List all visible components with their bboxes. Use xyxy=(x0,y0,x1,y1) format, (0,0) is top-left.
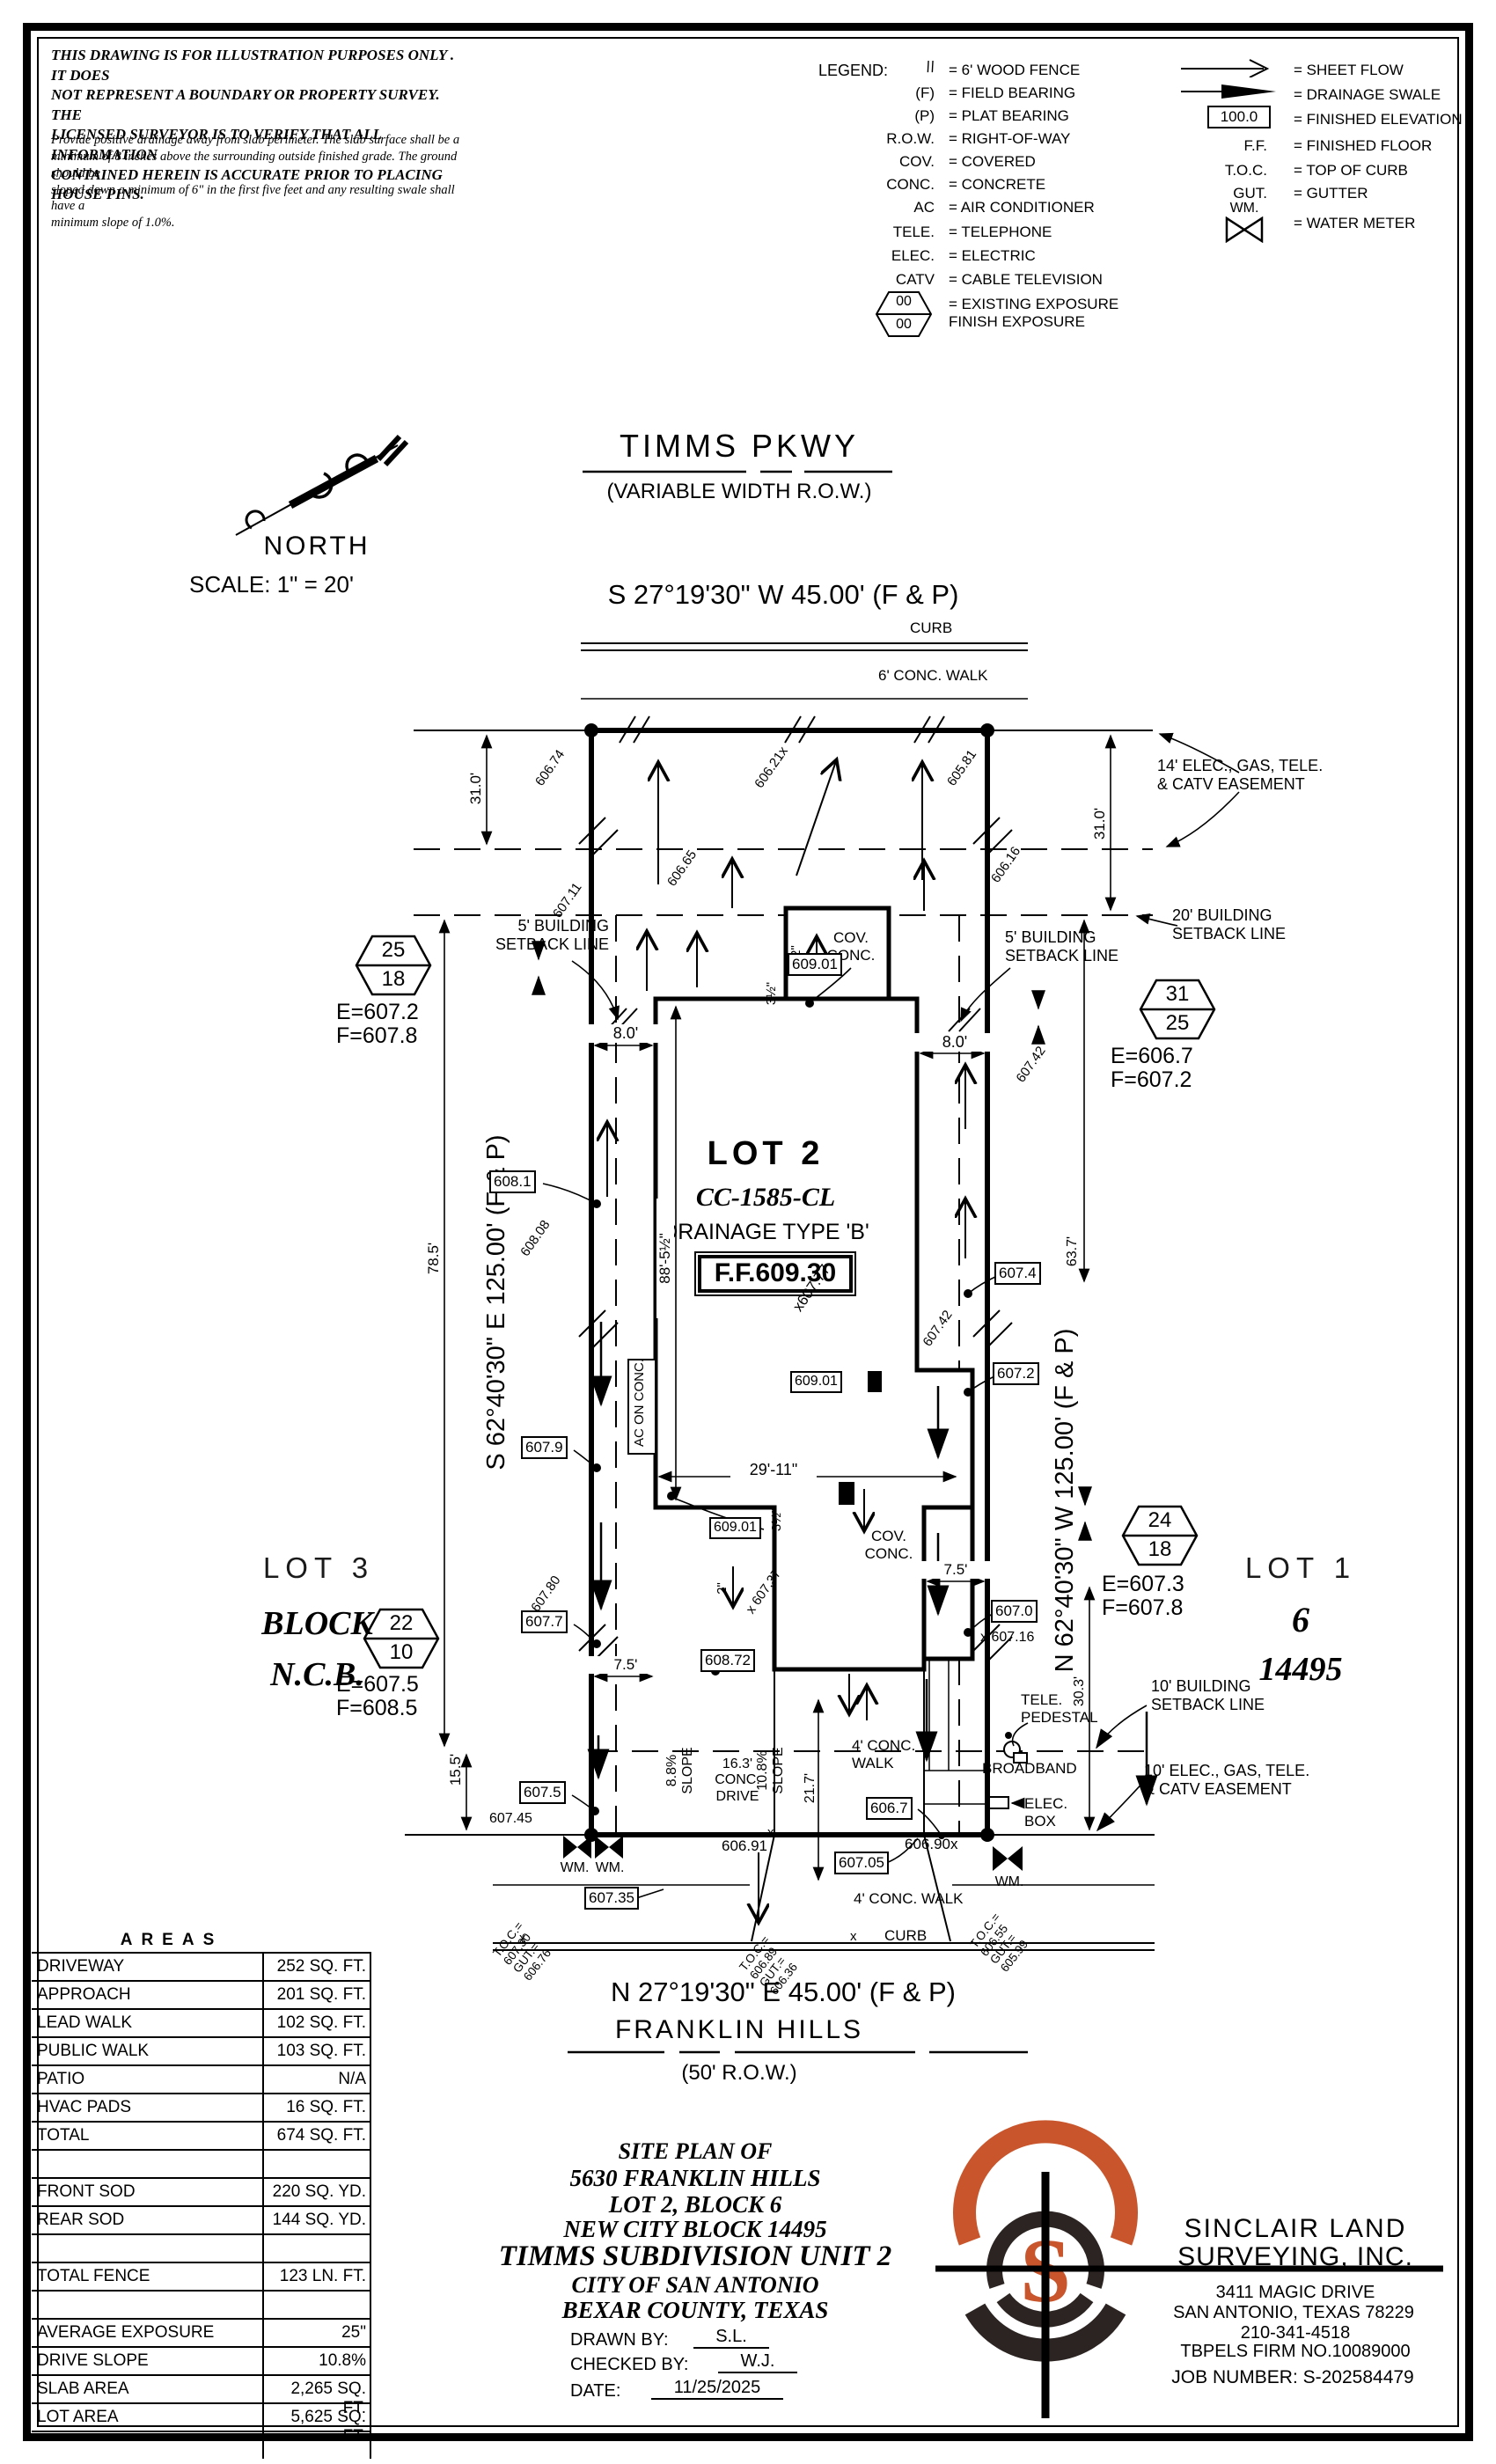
plat-bearing-symbol: (P) xyxy=(836,107,935,125)
x-mark-curb-right: x xyxy=(850,1929,857,1944)
firm-name-line-1: SINCLAIR LAND xyxy=(1144,2214,1447,2245)
dim-78-5: 78.5' xyxy=(425,1230,443,1287)
spot-box-607-9: 607.9 xyxy=(521,1436,568,1459)
dim-15-5: 15.5' xyxy=(447,1742,465,1797)
row-label: SLAB AREA xyxy=(37,2380,129,2399)
job-number: JOB NUMBER: S-202584479 xyxy=(1132,2367,1454,2388)
legend-hex-existing: 00 xyxy=(880,294,928,310)
ac-symbol: AC xyxy=(836,199,935,216)
setback-5ft-left-label: 5' BUILDING SETBACK LINE xyxy=(475,917,609,953)
setback-10ft-label: 10' BUILDING SETBACK LINE xyxy=(1151,1677,1301,1713)
sheet-flow-icon xyxy=(1179,58,1281,77)
ac-pad-label: AC ON CONC. xyxy=(632,1353,647,1452)
flag-nw-finish: F=607.8 xyxy=(336,1023,417,1049)
row-value: N/A xyxy=(268,2070,370,2089)
north-label: NORTH xyxy=(253,532,380,562)
table-row: REAR SOD144 SQ. YD. xyxy=(32,2207,370,2235)
spot-box-607-4: 607.4 xyxy=(994,1262,1041,1285)
date-value: 11/25/2025 xyxy=(651,2378,783,2400)
legend-covered: = COVERED xyxy=(949,153,1036,171)
legend-finished-floor: = FINISHED FLOOR xyxy=(1294,137,1432,155)
row-label: TOTAL xyxy=(37,2126,89,2145)
dim-8-right: 8.0' xyxy=(913,1033,996,1052)
dim-30-3: 30.3' xyxy=(1072,1665,1088,1718)
spot-606-90: 606.90x xyxy=(905,1836,958,1853)
row-value: 16 SQ. FT. xyxy=(268,2098,370,2117)
street-name-bottom: FRANKLIN HILLS xyxy=(581,2015,898,2046)
row-value: 201 SQ. FT. xyxy=(268,1985,370,2005)
legend-catv: = CABLE TELEVISION xyxy=(949,271,1103,289)
row-value: 102 SQ. FT. xyxy=(268,2013,370,2033)
firm-tbpels: TBPELS FIRM NO.10089000 xyxy=(1140,2342,1450,2362)
field-bearing-symbol: (F) xyxy=(836,84,935,102)
title-subdivision: TIMMS SUBDIVISION UNIT 2 xyxy=(431,2240,959,2274)
flag-ne-finish: F=607.2 xyxy=(1111,1067,1192,1093)
row-symbol: R.O.W. xyxy=(836,130,935,148)
areas-table-title: AREAS xyxy=(62,1931,282,1950)
table-row: FRONT SOD220 SQ. YD. xyxy=(32,2179,370,2207)
dim-7-5-right: 7.5' xyxy=(919,1561,993,1579)
dim-8-left: 8.0' xyxy=(586,1024,665,1043)
legend-gutter: = GUTTER xyxy=(1294,185,1368,202)
dim-2in-porch: 2" xyxy=(843,1475,858,1508)
flag-se-existing: E=607.3 xyxy=(1102,1572,1184,1597)
row-label: TOTAL FENCE xyxy=(37,2267,150,2286)
spot-607-45: 607.45 xyxy=(489,1811,532,1827)
site-plan-sheet: S THIS DRAWING IS FOR ILLUSTRATION PURPO… xyxy=(0,0,1496,2464)
title-county: BEXAR COUNTY, TEXAS xyxy=(449,2297,942,2324)
street-name-top: TIMMS PKWY xyxy=(581,428,898,464)
table-row: PATION/A xyxy=(32,2066,370,2094)
covered-concrete-porch-label: COV. CONC. xyxy=(856,1528,921,1562)
spot-box-607-05: 607.05 xyxy=(834,1852,889,1874)
row-value: 144 SQ. YD. xyxy=(268,2211,370,2230)
firm-address-street: 3411 MAGIC DRIVE xyxy=(1144,2283,1447,2303)
row-value: 674 SQ. FT. xyxy=(268,2126,370,2145)
ff-symbol: F.F. xyxy=(1179,137,1267,155)
finished-elevation-symbol: 100.0 xyxy=(1207,106,1271,128)
flag-sw-existing: E=607.5 xyxy=(336,1672,419,1698)
broadband-label: BROADBAND xyxy=(982,1760,1096,1778)
table-row: TOTAL FENCE123 LN. FT. xyxy=(32,2263,370,2292)
legend-top-of-curb: = TOP OF CURB xyxy=(1294,162,1408,180)
checked-by-label: CHECKED BY: xyxy=(570,2355,688,2375)
row-value: 10.8% xyxy=(268,2351,370,2371)
drive-slope-left-label: 8.8% SLOPE xyxy=(664,1744,697,1797)
flag-sw-finish: F=608.5 xyxy=(336,1696,417,1721)
dim-21-7: 21.7' xyxy=(803,1762,818,1815)
row-label: DRIVE SLOPE xyxy=(37,2351,149,2371)
cov-symbol: COV. xyxy=(836,153,935,171)
dim-88-5half: 88'-5½" xyxy=(656,1199,674,1318)
row-label: LEAD WALK xyxy=(37,2013,132,2033)
wood-fence-symbol: \\ xyxy=(877,58,938,77)
row-label: LOT AREA xyxy=(37,2408,119,2427)
lot2-cc-number: CC-1585-CL xyxy=(667,1183,864,1214)
legend-sheet-flow: = SHEET FLOW xyxy=(1294,62,1404,79)
checked-by-value: W.J. xyxy=(718,2351,797,2373)
walk-4ft-upper-label: 4' CONC. WALK xyxy=(852,1737,933,1771)
title-lot-block: LOT 2, BLOCK 6 xyxy=(449,2191,942,2218)
areas-table: DRIVEWAY252 SQ. FT. APPROACH201 SQ. FT. … xyxy=(32,1952,371,2459)
legend-field-bearing: = FIELD BEARING xyxy=(949,84,1075,102)
spot-box-609-01-step: 609.01 xyxy=(790,1371,842,1393)
legend-hex-finish: 00 xyxy=(880,317,928,333)
flag-se-finish: F=607.8 xyxy=(1102,1595,1183,1621)
flag-ne-existing: E=606.7 xyxy=(1111,1044,1193,1069)
spot-box-607-0: 607.0 xyxy=(991,1600,1038,1623)
title-ncb: NEW CITY BLOCK 14495 xyxy=(449,2216,942,2243)
spot-607-16: x 607.16 xyxy=(980,1630,1034,1646)
setback-20ft-label: 20' BUILDING SETBACK LINE xyxy=(1172,906,1313,942)
conc-symbol: CONC. xyxy=(836,176,935,194)
wm-symbol-label: WM. xyxy=(1221,201,1267,216)
drive-slope-right-label: 10.8% SLOPE xyxy=(755,1744,788,1797)
spot-box-607-35: 607.35 xyxy=(584,1887,639,1910)
table-row: APPROACH201 SQ. FT. xyxy=(32,1982,370,2010)
firm-address-city: SAN ANTONIO, TEXAS 78229 xyxy=(1135,2303,1452,2323)
row-value: 123 LN. FT. xyxy=(268,2267,370,2286)
legend-air-conditioner: = AIR CONDITIONER xyxy=(949,199,1095,216)
row-label: AVERAGE EXPOSURE xyxy=(37,2323,214,2343)
spot-box-608-1: 608.1 xyxy=(489,1170,536,1193)
setback-5ft-right-label: 5' BUILDING SETBACK LINE xyxy=(1005,928,1155,964)
legend-electric: = ELECTRIC xyxy=(949,247,1036,265)
row-value: 103 SQ. FT. xyxy=(268,2042,370,2061)
row-label: APPROACH xyxy=(37,1985,131,2005)
table-row: LOT AREA5,625 SQ. FT. xyxy=(32,2404,370,2432)
row-value: 220 SQ. YD. xyxy=(268,2182,370,2202)
lot1-block-number: 6 xyxy=(1230,1600,1371,1640)
row-label: FRONT SOD xyxy=(37,2182,136,2202)
bearing-top: S 27°19'30" W 45.00' (F & P) xyxy=(519,579,1047,611)
x-mark-lot-line: x xyxy=(767,1825,774,1840)
legend-exposure: = EXISTING EXPOSURE FINISH EXPOSURE xyxy=(949,296,1118,330)
flag-ne-bottom: 25 xyxy=(1151,1011,1204,1036)
title-address: 5630 FRANKLIN HILLS xyxy=(449,2165,942,2192)
walk-label-bottom: 4' CONC. WALK xyxy=(854,1890,963,1908)
elec-symbol: ELEC. xyxy=(836,247,935,265)
spot-606-91: 606.91 xyxy=(722,1837,767,1855)
dim-29-11: 29'-11" xyxy=(730,1461,817,1479)
scale-label: SCALE: 1" = 20' xyxy=(189,572,444,598)
flag-se-top: 24 xyxy=(1133,1508,1186,1533)
legend-telephone: = TELEPHONE xyxy=(949,224,1052,241)
drawn-by-value: S.L. xyxy=(693,2327,769,2349)
table-row xyxy=(32,2292,370,2320)
row-label: PUBLIC WALK xyxy=(37,2042,149,2061)
table-row: PUBLIC WALK103 SQ. FT. xyxy=(32,2038,370,2066)
table-row: TOTAL674 SQ. FT. xyxy=(32,2123,370,2151)
flag-ne-top: 31 xyxy=(1151,982,1204,1007)
water-meter-icon xyxy=(1225,216,1264,243)
table-row: DRIVEWAY252 SQ. FT. xyxy=(32,1954,370,1982)
dim-31-left: 31.0' xyxy=(467,760,485,817)
curb-label-top: CURB xyxy=(910,620,952,637)
dim-2in-patio: 2" xyxy=(715,1572,730,1605)
drawn-by-label: DRAWN BY: xyxy=(570,2330,669,2350)
table-row: HVAC PADS16 SQ. FT. xyxy=(32,2094,370,2123)
dim-3half-porch: 3½" xyxy=(769,1500,784,1540)
table-row: SLAB AREA2,265 SQ. FT. xyxy=(32,2376,370,2404)
disclaimer-drainage-note: Provide positive drainage away from slab… xyxy=(51,132,468,231)
catv-symbol: CATV xyxy=(836,271,935,289)
table-row xyxy=(32,2235,370,2263)
title-city: CITY OF SAN ANTONIO xyxy=(449,2272,942,2299)
flag-nw-existing: E=607.2 xyxy=(336,1000,419,1025)
row-value: 252 SQ. FT. xyxy=(268,1957,370,1976)
legend-water-meter: = WATER METER xyxy=(1294,215,1415,232)
spot-box-606-7: 606.7 xyxy=(866,1797,913,1820)
tele-symbol: TELE. xyxy=(836,224,935,241)
table-row: AVERAGE EXPOSURE25" xyxy=(32,2320,370,2348)
legend-finished-elevation: = FINISHED ELEVATION xyxy=(1294,111,1463,128)
water-meter-label-2: WM. xyxy=(590,1860,630,1876)
curb-label-bottom: CURB xyxy=(884,1927,927,1945)
legend-wood-fence: = 6' WOOD FENCE xyxy=(949,62,1080,79)
row-label: DRIVEWAY xyxy=(37,1957,124,1976)
lot2-drainage-type: DRAINAGE TYPE 'B' xyxy=(660,1220,871,1245)
row-value: 25" xyxy=(268,2323,370,2343)
street-row-top: (VARIABLE WIDTH R.O.W.) xyxy=(581,480,898,504)
gut-symbol: GUT. xyxy=(1179,185,1267,202)
lot1-name: LOT 1 xyxy=(1230,1551,1371,1585)
walk-label-top: 6' CONC. WALK xyxy=(878,667,987,685)
firm-name-line-2: SURVEYING, INC. xyxy=(1144,2242,1447,2273)
table-row: DRIVE SLOPE10.8% xyxy=(32,2348,370,2376)
legend-title: LEGEND: xyxy=(818,62,888,80)
spot-box-608-72: 608.72 xyxy=(700,1649,755,1672)
dim-31-right: 31.0' xyxy=(1091,796,1109,852)
title-line-1: SITE PLAN OF xyxy=(449,2138,942,2165)
legend-row: = RIGHT-OF-WAY xyxy=(949,130,1070,148)
flag-sw-top: 22 xyxy=(375,1611,428,1636)
x-mark-curb-left: x xyxy=(519,1931,526,1946)
flag-sw-bottom: 10 xyxy=(375,1640,428,1665)
legend-concrete: = CONCRETE xyxy=(949,176,1045,194)
date-label: DATE: xyxy=(570,2381,620,2402)
dim-3half-stoop: 3½" xyxy=(764,973,779,1014)
legend-drainage-swale: = DRAINAGE SWALE xyxy=(1294,86,1441,104)
row-label: PATIO xyxy=(37,2070,84,2089)
lot3-name: LOT 3 xyxy=(248,1551,389,1585)
legend-plat-bearing: = PLAT BEARING xyxy=(949,107,1069,125)
spot-box-607-5: 607.5 xyxy=(519,1781,566,1804)
flag-se-bottom: 18 xyxy=(1133,1537,1186,1562)
drainage-swale-icon xyxy=(1179,83,1281,100)
lot2-name: LOT 2 xyxy=(688,1135,843,1174)
spot-box-607-2: 607.2 xyxy=(993,1362,1039,1385)
table-row xyxy=(32,2432,370,2459)
row-label: REAR SOD xyxy=(37,2211,124,2230)
dim-63-7: 63.7' xyxy=(1065,1225,1081,1278)
elec-box-label: ELEC. BOX xyxy=(1024,1795,1086,1830)
easement-10ft-label: 10' ELEC., GAS, TELE. & CATV EASEMENT xyxy=(1144,1762,1320,1798)
table-row: LEAD WALK102 SQ. FT. xyxy=(32,2010,370,2038)
bearing-left: S 62°40'30" E 125.00' (F & P) xyxy=(482,1010,511,1595)
spot-box-609-01-stoop: 609.01 xyxy=(788,953,842,976)
flag-nw-bottom: 18 xyxy=(367,967,420,992)
toc-symbol: T.O.C. xyxy=(1179,162,1267,180)
spot-box-607-7: 607.7 xyxy=(521,1610,568,1633)
spot-box-609-01-patio: 609.01 xyxy=(709,1517,761,1539)
row-label: HVAC PADS xyxy=(37,2098,131,2117)
dim-7-5-left: 7.5' xyxy=(588,1656,664,1674)
street-row-bottom: (50' R.O.W.) xyxy=(616,2061,862,2086)
easement-14ft-label: 14' ELEC., GAS, TELE. & CATV EASEMENT xyxy=(1157,757,1333,793)
firm-phone: 210-341-4518 xyxy=(1144,2323,1447,2343)
flag-nw-top: 25 xyxy=(367,938,420,963)
table-row xyxy=(32,2151,370,2179)
